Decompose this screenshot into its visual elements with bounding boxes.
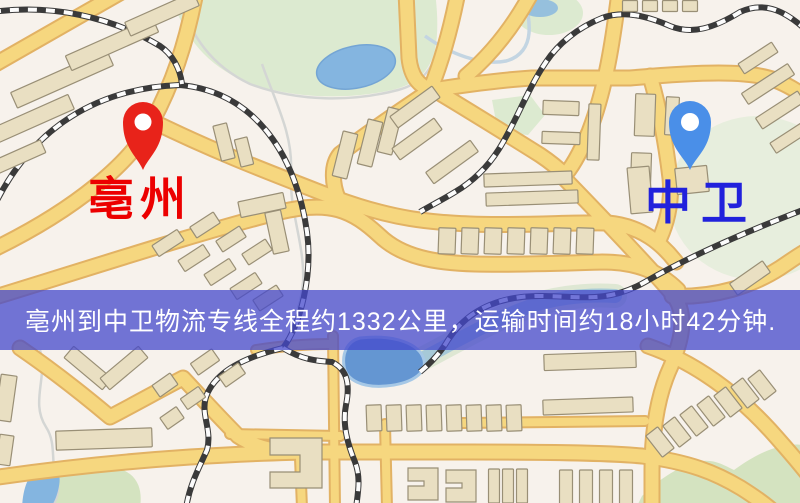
- building: [643, 1, 658, 12]
- building: [486, 190, 578, 206]
- destination-label: 中卫: [645, 180, 757, 226]
- building: [489, 469, 500, 503]
- building: [507, 228, 525, 255]
- building: [406, 405, 422, 432]
- building: [484, 228, 502, 255]
- building: [506, 405, 522, 432]
- building: [486, 405, 502, 432]
- building: [530, 228, 548, 255]
- building: [56, 428, 153, 450]
- building: [580, 470, 593, 503]
- building: [366, 405, 382, 432]
- building: [438, 228, 456, 255]
- building: [543, 397, 633, 415]
- building: [542, 131, 580, 144]
- building: [683, 1, 698, 12]
- building: [484, 171, 572, 187]
- building: [544, 351, 637, 370]
- map-canvas[interactable]: [0, 0, 800, 503]
- route-info-banner: 亳州到中卫物流专线全程约1332公里，运输时间约18小时42分钟.: [0, 290, 800, 350]
- origin-label: 亳州: [88, 176, 192, 222]
- building: [553, 228, 571, 255]
- building: [503, 469, 514, 503]
- building: [576, 228, 594, 255]
- building: [466, 405, 482, 432]
- building: [461, 228, 479, 255]
- building: [560, 470, 573, 503]
- building: [623, 1, 638, 12]
- building: [517, 469, 528, 503]
- building: [634, 94, 655, 137]
- route-info-text: 亳州到中卫物流专线全程约1332公里，运输时间约18小时42分钟.: [25, 302, 776, 338]
- building: [620, 470, 633, 503]
- building: [663, 1, 678, 12]
- building: [426, 405, 442, 432]
- map-viewport[interactable]: 亳州 中卫 亳州到中卫物流专线全程约1332公里，运输时间约18小时42分钟.: [0, 0, 800, 503]
- building: [386, 405, 402, 432]
- building: [543, 100, 579, 115]
- building: [587, 104, 601, 160]
- building: [446, 405, 462, 432]
- building: [600, 470, 613, 503]
